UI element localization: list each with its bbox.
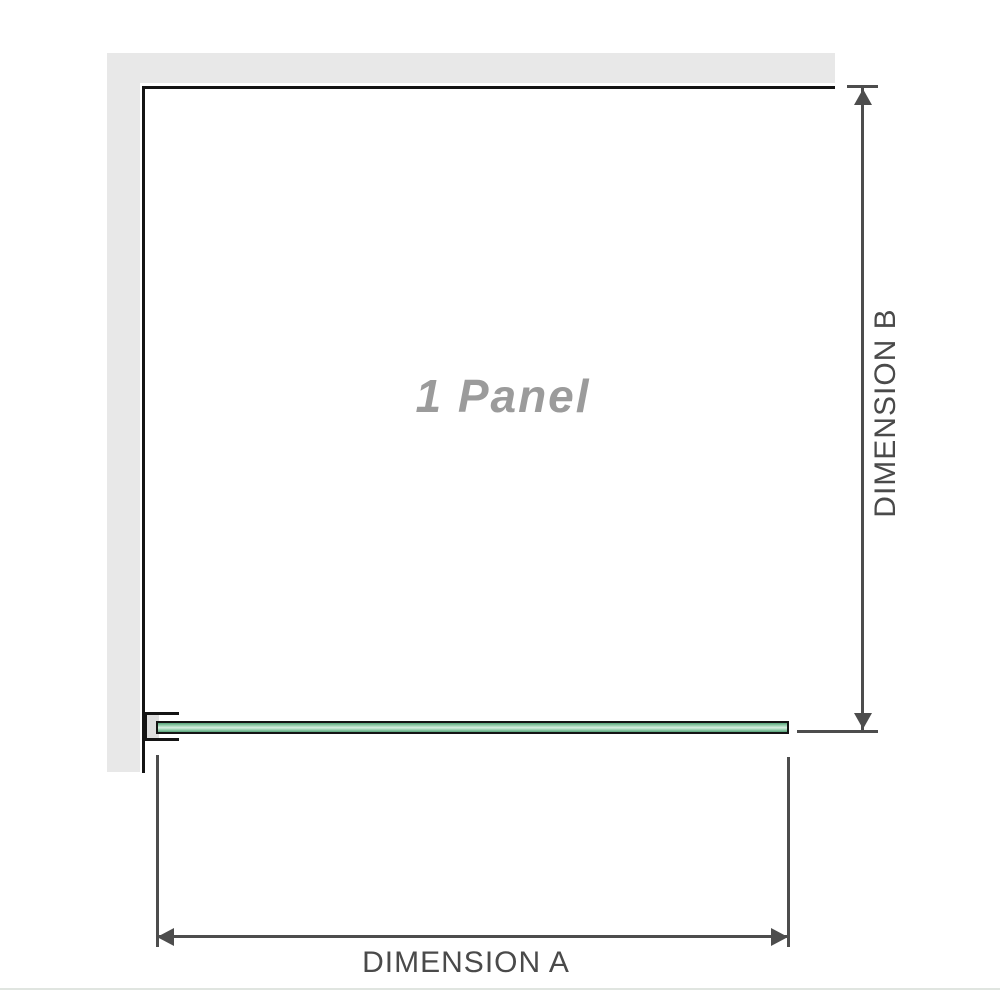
arrow-up-icon bbox=[854, 89, 872, 105]
arrow-right-icon bbox=[771, 928, 788, 946]
panel-dimension-diagram: 1 Panel DIMENSION B DIMENSION A bbox=[0, 0, 1000, 1000]
arrow-left-icon bbox=[157, 928, 174, 946]
page-divider bbox=[0, 988, 1000, 990]
dimension-b-top-tick bbox=[847, 85, 878, 88]
dimension-a-label: DIMENSION A bbox=[316, 946, 616, 980]
glass-panel bbox=[156, 721, 789, 734]
wall-top-strip bbox=[107, 53, 835, 83]
arrow-down-icon bbox=[854, 713, 872, 729]
dimension-a-right-extension-line bbox=[787, 757, 790, 947]
dimension-b-bottom-tick bbox=[797, 730, 878, 733]
panel-count-label: 1 Panel bbox=[303, 368, 703, 424]
wall-bracket-channel bbox=[144, 712, 179, 741]
dimension-b-line bbox=[861, 88, 864, 731]
dimension-a-left-extension-line bbox=[156, 755, 159, 947]
dimension-b-label: DIMENSION B bbox=[872, 302, 900, 524]
dimension-a-line bbox=[157, 935, 788, 938]
panel-area-left-edge bbox=[142, 86, 145, 773]
wall-left-strip bbox=[107, 53, 140, 772]
panel-area-top-edge bbox=[142, 86, 835, 89]
